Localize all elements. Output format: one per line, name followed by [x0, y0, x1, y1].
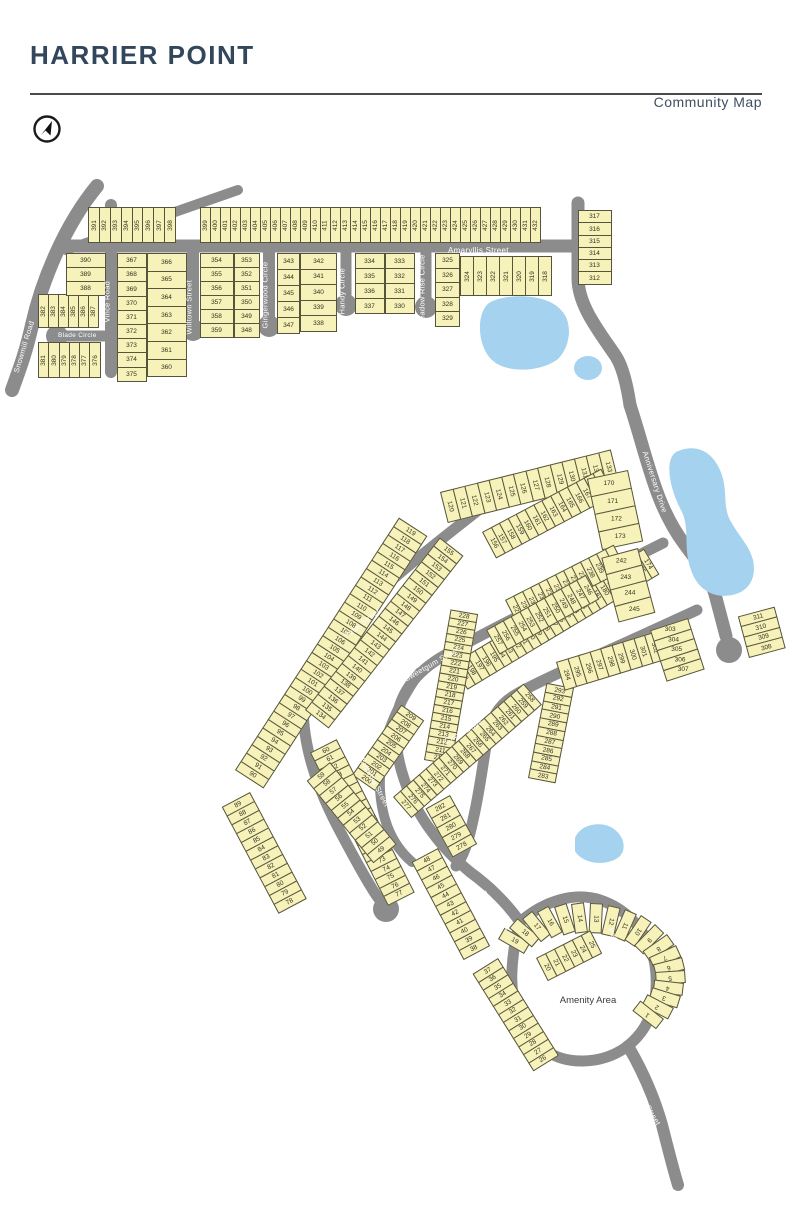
lot-323[interactable]: 323 — [473, 256, 487, 296]
lot-13[interactable]: 13 — [588, 903, 602, 934]
lot-number: 330 — [395, 302, 406, 309]
lot-363[interactable]: 363 — [147, 306, 187, 325]
lot-number: 397 — [156, 220, 163, 231]
lot-360[interactable]: 360 — [147, 359, 187, 378]
lot-number: 38 — [469, 943, 479, 953]
lot-number: 286 — [542, 746, 554, 755]
lot-number: 291 — [550, 703, 562, 712]
lot-number: 305 — [672, 646, 683, 653]
lot-356[interactable]: 356 — [200, 281, 234, 296]
lot-strip-343-347: 343344345346347 — [277, 253, 300, 334]
lot-388[interactable]: 388 — [66, 281, 106, 296]
lot-357[interactable]: 357 — [200, 295, 234, 310]
lot-number: 356 — [212, 285, 223, 292]
lot-366[interactable]: 366 — [147, 253, 187, 272]
lot-342[interactable]: 342 — [300, 253, 337, 270]
lot-number: 344 — [283, 274, 294, 281]
lot-number: 75 — [386, 873, 396, 883]
lot-number: 414 — [352, 220, 359, 231]
lot-354[interactable]: 354 — [200, 253, 234, 268]
lot-number: 341 — [313, 273, 324, 280]
lot-number: 17 — [531, 922, 541, 932]
lot-number: 171 — [608, 498, 619, 505]
lot-number: 360 — [162, 364, 173, 371]
lot-number: 351 — [242, 285, 253, 292]
lot-number: 394 — [123, 220, 130, 231]
lot-number: 126 — [518, 482, 527, 494]
lot-number: 125 — [506, 485, 515, 497]
lot-number: 324 — [463, 271, 470, 282]
lot-strip-324-318: 324323322321320319318 — [460, 256, 552, 296]
lot-number: 214 — [438, 722, 450, 731]
lot-number: 337 — [365, 302, 376, 309]
lot-number: 376 — [92, 355, 99, 366]
lot-371[interactable]: 371 — [117, 310, 147, 325]
lot-number: 373 — [127, 342, 138, 349]
lot-329[interactable]: 329 — [435, 311, 460, 327]
lot-number: 392 — [101, 220, 108, 231]
lot-number: 367 — [127, 257, 138, 264]
lot-number: 288 — [545, 729, 557, 738]
lot-number: 1 — [644, 1011, 651, 1019]
lot-number: 331 — [395, 287, 406, 294]
amenity-area-label: Amenity Area — [553, 995, 623, 1006]
lot-number: 402 — [232, 220, 239, 231]
lot-number: 170 — [604, 480, 615, 487]
lot-336[interactable]: 336 — [355, 283, 385, 299]
lot-number: 19 — [510, 936, 520, 946]
lot-number: 284 — [538, 763, 550, 772]
lot-number: 325 — [442, 257, 453, 264]
lot-number: 227 — [456, 620, 468, 629]
lot-number: 359 — [212, 327, 223, 334]
lot-number: 10 — [633, 926, 643, 936]
lot-318[interactable]: 318 — [538, 256, 552, 296]
lot-strip-367-375: 367368369370371372373374375 — [117, 253, 147, 382]
lot-number: 228 — [458, 612, 470, 621]
lot-number: 308 — [760, 643, 772, 653]
lot-372[interactable]: 372 — [117, 324, 147, 339]
lot-369[interactable]: 369 — [117, 281, 147, 296]
lot-strip-325-329: 325326327328329 — [435, 253, 460, 327]
lot-number: 314 — [590, 250, 601, 257]
community-map-page: { "header": { "title": "HARRIER POINT", … — [0, 0, 792, 1224]
lot-345[interactable]: 345 — [277, 285, 300, 302]
lot-346[interactable]: 346 — [277, 301, 300, 318]
lot-number: 347 — [283, 322, 294, 329]
lot-strip-333-330: 333332331330 — [385, 253, 415, 314]
lot-number: 122 — [470, 494, 479, 506]
lot-number: 350 — [242, 299, 253, 306]
lot-number: 328 — [442, 301, 453, 308]
lot-number: 385 — [70, 306, 77, 317]
lot-number: 303 — [665, 626, 676, 633]
lot-number: 403 — [242, 220, 249, 231]
lot-number: 172 — [611, 515, 622, 522]
lot-number: 327 — [442, 286, 453, 293]
lot-number: 410 — [312, 220, 319, 231]
street-label-vince: Vince Road — [103, 281, 112, 323]
lot-number: 216 — [441, 706, 453, 715]
lot-359[interactable]: 359 — [200, 323, 234, 338]
lot-number: 400 — [212, 220, 219, 231]
lot-number: 317 — [590, 213, 601, 220]
lot-number: 287 — [543, 737, 555, 746]
lot-number: 336 — [365, 287, 376, 294]
lot-number: 292 — [552, 695, 564, 704]
lot-number: 243 — [621, 574, 632, 581]
lot-number: 25 — [587, 940, 597, 950]
lot-number: 384 — [60, 306, 67, 317]
lot-number: 11 — [620, 921, 629, 930]
lot-number: 430 — [512, 220, 519, 231]
lot-368[interactable]: 368 — [117, 267, 147, 282]
lot-number: 285 — [540, 754, 552, 763]
lot-number: 346 — [283, 306, 294, 313]
lot-315[interactable]: 315 — [578, 235, 612, 248]
lot-number: 283 — [537, 771, 549, 780]
lot-number: 123 — [482, 491, 491, 503]
lot-number: 340 — [313, 289, 324, 296]
lot-number: 420 — [412, 220, 419, 231]
lot-number: 345 — [283, 290, 294, 297]
lot-322[interactable]: 322 — [486, 256, 500, 296]
lot-317[interactable]: 317 — [578, 210, 612, 223]
lot-strip-382-387: 382383384385386387 — [38, 294, 99, 328]
lot-number: 349 — [242, 313, 253, 320]
lot-number: 406 — [272, 220, 279, 231]
lot-332[interactable]: 332 — [385, 268, 415, 284]
lot-number: 352 — [242, 271, 253, 278]
lot-number: 413 — [342, 220, 349, 231]
lot-number: 412 — [332, 220, 339, 231]
lot-number: 9 — [645, 935, 653, 942]
lot-number: 375 — [127, 371, 138, 378]
lot-number: 354 — [212, 257, 223, 264]
lot-number: 395 — [134, 220, 141, 231]
lot-337[interactable]: 337 — [355, 298, 385, 314]
street-label-meadowrise: Meadow Rise Circle — [418, 254, 427, 326]
lot-number: 26 — [539, 1054, 549, 1064]
lot-333[interactable]: 333 — [385, 253, 415, 269]
lot-350[interactable]: 350 — [234, 295, 260, 310]
lot-number: 419 — [402, 220, 409, 231]
lot-number: 310 — [754, 622, 766, 632]
lot-370[interactable]: 370 — [117, 296, 147, 311]
lot-number: 390 — [81, 257, 92, 264]
bulb-anniversary-end — [716, 637, 742, 663]
lot-number: 304 — [669, 636, 680, 643]
street-label-blade: Blade Circle — [58, 332, 97, 339]
lot-number: 396 — [145, 220, 152, 231]
lot-number: 226 — [455, 628, 467, 637]
lot-338[interactable]: 338 — [300, 315, 337, 332]
lot-number: 77 — [394, 890, 404, 900]
lot-352[interactable]: 352 — [234, 267, 260, 282]
lot-number: 332 — [395, 272, 406, 279]
lot-number: 369 — [127, 285, 138, 292]
lot-number: 319 — [528, 271, 535, 282]
lot-number: 372 — [127, 328, 138, 335]
lot-326[interactable]: 326 — [435, 268, 460, 284]
lot-number: 218 — [444, 691, 456, 700]
lot-strip-366-360: 366365364363362361360 — [147, 253, 187, 377]
lot-number: 13 — [592, 915, 599, 923]
lot-351[interactable]: 351 — [234, 281, 260, 296]
lot-number: 424 — [452, 220, 459, 231]
lot-number: 320 — [515, 271, 522, 282]
lot-number: 427 — [482, 220, 489, 231]
lot-strip-317-312: 317316315314313312 — [578, 210, 612, 285]
lot-number: 315 — [590, 238, 601, 245]
lot-strip-381-376: 381380379378377376 — [38, 342, 101, 378]
lot-number: 14 — [576, 914, 584, 922]
pond-top-small — [574, 356, 602, 380]
lot-number: 423 — [442, 220, 449, 231]
lot-316[interactable]: 316 — [578, 222, 612, 235]
community-map: Snowmill RoadBlade CircleVince RoadWillt… — [0, 0, 792, 1224]
lot-number: 408 — [292, 220, 299, 231]
lot-number: 366 — [162, 259, 173, 266]
lot-number: 370 — [127, 300, 138, 307]
lot-number: 121 — [458, 497, 467, 509]
lot-number: 4 — [666, 984, 670, 991]
lot-number: 219 — [445, 683, 457, 692]
lot-353[interactable]: 353 — [234, 253, 260, 268]
lot-number: 12 — [606, 917, 614, 926]
lot-340[interactable]: 340 — [300, 284, 337, 301]
lot-367[interactable]: 367 — [117, 253, 147, 268]
lot-number: 381 — [40, 355, 47, 366]
lot-432[interactable]: 432 — [530, 207, 541, 243]
lot-321[interactable]: 321 — [499, 256, 513, 296]
lot-325[interactable]: 325 — [435, 253, 460, 269]
lot-374[interactable]: 374 — [117, 352, 147, 367]
lot-number: 313 — [590, 262, 601, 269]
lot-number: 380 — [50, 355, 57, 366]
street-label-gingerwood: Gingerwood Circle — [261, 262, 270, 329]
lot-number: 78 — [285, 897, 295, 907]
lot-number: 339 — [313, 304, 324, 311]
lot-strip-354-359: 354355356357358359 — [200, 253, 234, 338]
lot-319[interactable]: 319 — [525, 256, 539, 296]
lot-number: 393 — [112, 220, 119, 231]
lot-398[interactable]: 398 — [164, 207, 176, 243]
lot-347[interactable]: 347 — [277, 317, 300, 334]
lot-number: 415 — [362, 220, 369, 231]
lot-number: 429 — [502, 220, 509, 231]
lot-strip-334-337: 334335336337 — [355, 253, 385, 314]
lot-number: 133 — [603, 460, 612, 472]
lot-number: 389 — [81, 271, 92, 278]
lot-344[interactable]: 344 — [277, 269, 300, 286]
lot-376[interactable]: 376 — [89, 342, 100, 378]
lot-number: 15 — [560, 914, 569, 923]
lot-number: 379 — [61, 355, 68, 366]
lot-number: 220 — [447, 675, 459, 684]
lot-number: 326 — [442, 272, 453, 279]
lot-number: 374 — [127, 356, 138, 363]
lot-number: 173 — [615, 533, 626, 540]
lot-number: 431 — [522, 220, 529, 231]
lot-number: 16 — [545, 917, 555, 927]
lot-number: 311 — [752, 612, 764, 621]
lot-number: 432 — [532, 220, 539, 231]
lot-331[interactable]: 331 — [385, 283, 415, 299]
lot-320[interactable]: 320 — [512, 256, 526, 296]
street-label-amaryllis: Amaryllis Street — [448, 246, 509, 255]
lot-number: 417 — [382, 220, 389, 231]
lot-number: 323 — [476, 271, 483, 282]
lot-number: 225 — [453, 635, 465, 644]
lot-number: 289 — [547, 720, 559, 729]
lot-335[interactable]: 335 — [355, 268, 385, 284]
lot-number: 3 — [662, 994, 668, 1002]
street-label-handy: Handy Circle — [338, 268, 347, 315]
lot-number: 306 — [675, 656, 686, 663]
lot-number: 382 — [40, 306, 47, 317]
lot-strip-342-338: 342341340339338 — [300, 253, 337, 332]
lot-number: 334 — [365, 257, 376, 264]
lot-number: 401 — [222, 220, 229, 231]
lot-375[interactable]: 375 — [117, 367, 147, 382]
lot-339[interactable]: 339 — [300, 300, 337, 317]
pond-bottom-small — [575, 824, 624, 863]
lot-number: 49 — [376, 844, 386, 854]
lot-number: 215 — [440, 714, 452, 723]
lot-number: 217 — [442, 698, 454, 707]
lot-number: 338 — [313, 320, 324, 327]
lot-number: 361 — [162, 347, 173, 354]
lot-number: 129 — [555, 473, 564, 485]
lot-number: 343 — [283, 258, 294, 265]
lot-number: 383 — [50, 306, 57, 317]
lot-312[interactable]: 312 — [578, 271, 612, 284]
lot-343[interactable]: 343 — [277, 253, 300, 270]
lot-strip-390-388: 390389388 — [66, 253, 106, 296]
lot-number: 422 — [432, 220, 439, 231]
lot-number: 290 — [548, 712, 560, 721]
lot-361[interactable]: 361 — [147, 341, 187, 360]
lot-364[interactable]: 364 — [147, 288, 187, 307]
lot-number: 242 — [616, 558, 627, 565]
lot-348[interactable]: 348 — [234, 323, 260, 338]
lot-number: 416 — [372, 220, 379, 231]
pond-right — [669, 448, 754, 596]
lot-314[interactable]: 314 — [578, 247, 612, 260]
lot-328[interactable]: 328 — [435, 297, 460, 313]
lot-number: 244 — [625, 590, 636, 597]
lot-number: 405 — [262, 220, 269, 231]
lot-number: 421 — [422, 220, 429, 231]
lot-number: 378 — [71, 355, 78, 366]
lot-number: 371 — [127, 314, 138, 321]
lot-number: 355 — [212, 271, 223, 278]
lot-330[interactable]: 330 — [385, 298, 415, 314]
lot-number: 128 — [543, 476, 552, 488]
lot-number: 364 — [162, 294, 173, 301]
lot-number: 363 — [162, 312, 173, 319]
lot-390[interactable]: 390 — [66, 253, 106, 268]
lot-number: 119 — [404, 526, 417, 538]
lot-number: 335 — [365, 272, 376, 279]
lot-number: 388 — [81, 285, 92, 292]
lot-number: 312 — [590, 275, 601, 282]
lot-number: 321 — [502, 271, 509, 282]
lot-number: 377 — [81, 355, 88, 366]
lot-number: 316 — [590, 225, 601, 232]
lot-355[interactable]: 355 — [200, 267, 234, 282]
lot-number: 130 — [567, 470, 576, 482]
lot-number: 307 — [678, 666, 689, 673]
lot-number: 353 — [242, 257, 253, 264]
lot-365[interactable]: 365 — [147, 271, 187, 290]
lot-349[interactable]: 349 — [234, 309, 260, 324]
lot-387[interactable]: 387 — [88, 294, 99, 328]
north-arrow-icon — [32, 114, 62, 144]
lot-number: 2 — [654, 1003, 660, 1011]
lot-number: 278 — [456, 840, 469, 851]
lot-number: 245 — [629, 606, 640, 613]
lot-number: 362 — [162, 329, 173, 336]
lot-number: 399 — [202, 220, 209, 231]
lot-number: 309 — [757, 633, 769, 643]
lot-number: 120 — [446, 500, 455, 512]
lot-number: 342 — [313, 258, 324, 265]
lot-389[interactable]: 389 — [66, 267, 106, 282]
lot-number: 357 — [212, 299, 223, 306]
lot-number: 398 — [167, 220, 174, 231]
lot-358[interactable]: 358 — [200, 309, 234, 324]
lot-number: 348 — [242, 327, 253, 334]
lot-number: 428 — [492, 220, 499, 231]
lot-number: 418 — [392, 220, 399, 231]
pond-top — [480, 296, 569, 369]
lot-number: 404 — [252, 220, 259, 231]
lot-number: 124 — [494, 488, 503, 500]
street-label-willtown: Willtown Street — [185, 280, 194, 335]
lot-number: 358 — [212, 313, 223, 320]
lot-313[interactable]: 313 — [578, 259, 612, 272]
lot-number: 426 — [472, 220, 479, 231]
lot-334[interactable]: 334 — [355, 253, 385, 269]
lot-number: 409 — [302, 220, 309, 231]
lot-number: 18 — [519, 928, 529, 938]
lot-number: 221 — [448, 667, 460, 676]
lot-number: 329 — [442, 315, 453, 322]
lot-number: 365 — [162, 276, 173, 283]
lot-number: 407 — [282, 220, 289, 231]
lot-strip-399-432: 3994004014024034044054064074084094104114… — [200, 207, 541, 243]
lot-324[interactable]: 324 — [460, 256, 474, 296]
lot-362[interactable]: 362 — [147, 323, 187, 342]
lot-number: 425 — [462, 220, 469, 231]
lot-number: 222 — [449, 659, 461, 668]
lot-number: 368 — [127, 271, 138, 278]
lot-number: 127 — [531, 479, 540, 491]
lot-number: 391 — [90, 220, 97, 231]
lot-number: 411 — [322, 220, 329, 230]
lot-number: 333 — [395, 257, 406, 264]
lot-number: 322 — [489, 271, 496, 282]
lot-327[interactable]: 327 — [435, 282, 460, 298]
lot-number: 386 — [80, 306, 87, 317]
lot-strip-353-348: 353352351350349348 — [234, 253, 260, 338]
lot-373[interactable]: 373 — [117, 338, 147, 353]
lot-341[interactable]: 341 — [300, 269, 337, 286]
lot-number: 387 — [90, 306, 97, 317]
lot-number: 8 — [655, 944, 662, 952]
